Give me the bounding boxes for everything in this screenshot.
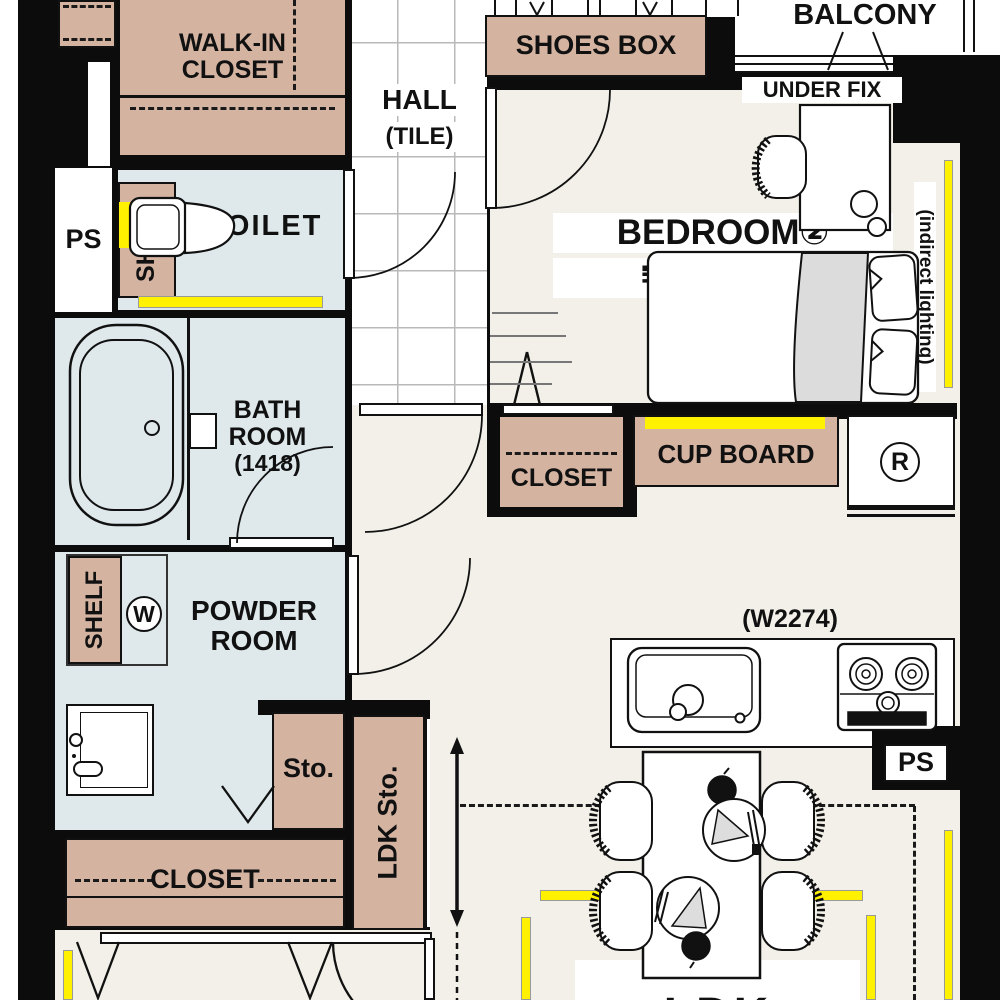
floor-plan: WALK-IN CLOSET HALL (TILE) SHOES BOX BAL… xyxy=(0,0,1000,1000)
fridge-letter: R xyxy=(891,448,909,477)
shoes-box-label: SHOES BOX xyxy=(485,15,707,77)
ldk-label: LDK xyxy=(575,960,860,1000)
powder-line1: POWDER xyxy=(191,596,317,626)
balcony-side-window xyxy=(963,0,975,52)
under-fix-label: UNDER FIX xyxy=(742,77,902,103)
powder-line2: ROOM xyxy=(210,626,297,656)
bottom-bedroom-door-leaf xyxy=(424,938,435,1000)
walk-in-closet-line1: WALK-IN xyxy=(179,30,286,57)
ldk-accent-strip-v3 xyxy=(944,830,953,1000)
bath-label: BATH ROOM (1418) xyxy=(205,398,330,474)
bedroom-closet-dash xyxy=(506,452,617,455)
closet-bottom-track xyxy=(100,932,432,944)
hall-room xyxy=(352,0,487,405)
closet-bottom-dash-left xyxy=(75,879,153,882)
ldk-label-box: LDK xyxy=(575,960,860,1000)
walk-in-closet-label: WALK-IN CLOSET xyxy=(120,28,345,86)
walk-in-closet-line2: CLOSET xyxy=(182,57,283,84)
washer-letter: W xyxy=(133,601,155,628)
bath-size: (1418) xyxy=(234,451,300,476)
walk-in-closet-counter-line xyxy=(120,95,345,98)
window-glass-line xyxy=(735,63,893,65)
walk-in-closet-hanger-dash xyxy=(130,107,335,110)
bottom-accent-strip xyxy=(63,950,73,1000)
bedroom2-size-label: ≒ 4．1J xyxy=(553,258,893,298)
indirect-lighting-label: (indirect lighting) xyxy=(914,182,936,392)
bedroom-closet-label: CLOSET xyxy=(500,462,623,494)
cup-board-accent-strip xyxy=(645,417,825,429)
ldk-storage-label: LDK Sto. xyxy=(376,748,401,898)
cup-board-label: CUP BOARD xyxy=(633,434,839,474)
toilet-accent-strip-left xyxy=(119,202,131,248)
toilet-label: TOILET xyxy=(190,210,340,244)
storage-label: Sto. xyxy=(272,752,345,786)
ldk-accent-strip-h xyxy=(540,890,863,901)
mini-closet-hanger-dash-top xyxy=(63,5,111,8)
closet-bottom-line xyxy=(65,896,345,898)
powder-shelf-label: SHELF xyxy=(83,555,107,665)
fridge-base-line1 xyxy=(847,507,955,510)
hall-tile-label: (TILE) xyxy=(352,122,487,152)
toilet-accent-strip-bottom xyxy=(138,296,323,308)
ldk-accent-strip-v1 xyxy=(521,917,531,1000)
kitchen-width-label: (W2274) xyxy=(715,604,865,634)
ldk-boundary-dash-h xyxy=(460,804,915,807)
fridge-icon: R xyxy=(880,442,920,482)
toilet-shelf-label: SHELF xyxy=(133,186,159,296)
bath-line1: BATH xyxy=(234,397,302,424)
balcony-label: BALCONY xyxy=(785,0,945,32)
fridge-base-line2 xyxy=(847,514,955,517)
bath-line2: ROOM xyxy=(229,424,307,451)
indirect-lighting-strip xyxy=(944,160,953,388)
wall-slot xyxy=(88,62,110,166)
closet-bottom-label: CLOSET xyxy=(150,864,260,896)
ldk-boundary-dash-v xyxy=(913,806,916,1000)
washer-icon: W xyxy=(126,596,162,632)
powder-room-label: POWDER ROOM xyxy=(168,594,340,658)
closet-bottom-dash-right xyxy=(258,879,336,882)
ps-right-label: PS xyxy=(884,744,948,782)
ldk-accent-strip-v2 xyxy=(866,915,876,1000)
mini-closet-hanger-dash-bottom xyxy=(63,38,111,41)
ps-left-label: PS xyxy=(55,222,112,258)
bedroom2-label: BEDROOM② xyxy=(553,213,893,253)
bedroom-closet-sliding-door xyxy=(502,404,614,415)
vanity-bowl xyxy=(80,712,148,788)
hall-label: HALL xyxy=(352,84,487,116)
bedroom2-window xyxy=(735,55,893,73)
